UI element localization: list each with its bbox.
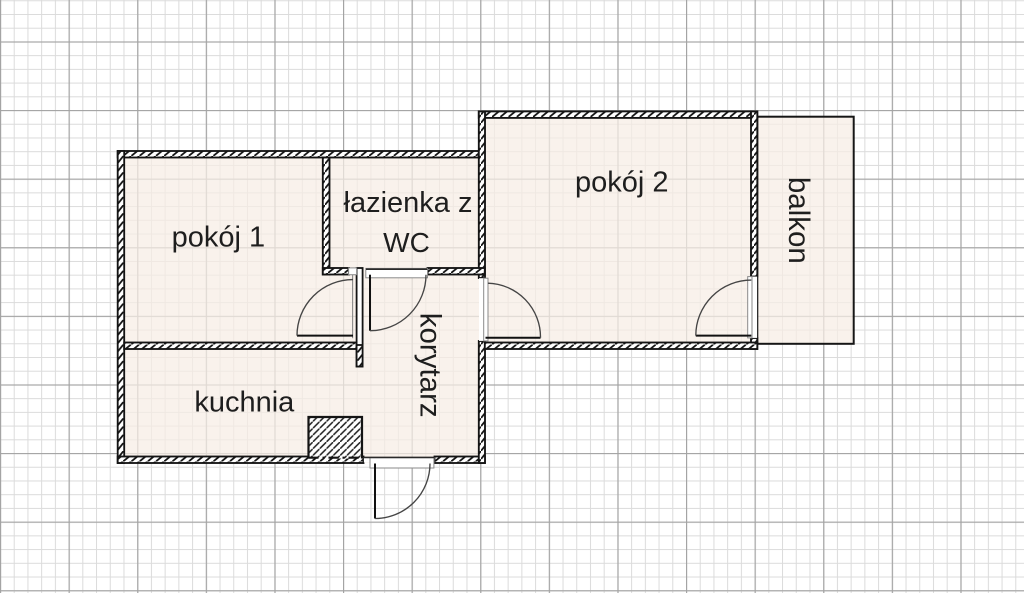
svg-text:łazienka z: łazienka z: [344, 187, 473, 219]
svg-text:kuchnia: kuchnia: [194, 386, 295, 418]
svg-text:balkon: balkon: [782, 177, 815, 264]
svg-text:korytarz: korytarz: [413, 313, 446, 418]
svg-text:WC: WC: [383, 227, 430, 258]
svg-text:pokój 1: pokój 1: [172, 222, 266, 254]
svg-text:pokój 2: pokój 2: [575, 167, 669, 199]
